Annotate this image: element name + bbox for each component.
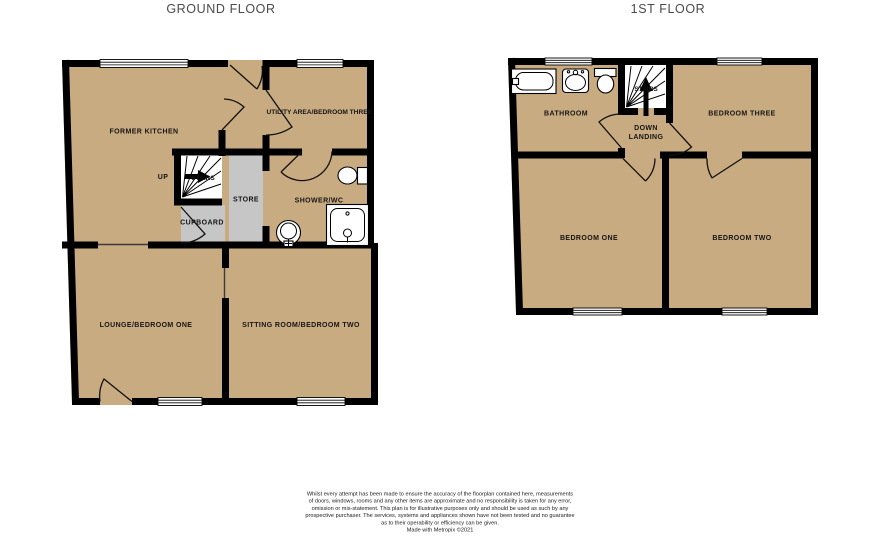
bath-icon xyxy=(512,69,557,94)
room-label-bedroom-one: BEDROOM ONE xyxy=(560,235,618,242)
window xyxy=(573,308,622,315)
room-label-lounge: LOUNGE/BEDROOM ONE xyxy=(100,322,193,329)
room-label-sitting-room: SITTING ROOM/BEDROOM TWO xyxy=(242,322,360,329)
room-label-former-kitchen: FORMER KITCHEN xyxy=(110,129,179,136)
window xyxy=(722,308,767,315)
toilet-icon xyxy=(338,167,368,184)
room-label-bedroom-three: BEDROOM THREE xyxy=(708,111,775,118)
disclaimer-credit: Made with Metropix ©2021 xyxy=(407,527,474,534)
window xyxy=(717,58,762,65)
disclaimer: Whilst every attempt has been made to en… xyxy=(305,492,574,534)
room-label-utility-area: UTILITY AREA/BEDROOM THREE xyxy=(267,109,373,116)
ground-floor-title: GROUND FLOOR xyxy=(166,2,275,16)
up-label: UP xyxy=(158,174,169,181)
window xyxy=(297,60,343,68)
disclaimer-line: prospective purchaser. The services, sys… xyxy=(305,513,574,519)
room-label-bathroom: BATHROOM xyxy=(544,111,588,118)
stairs-label: STAIRS xyxy=(191,175,215,182)
disclaimer-line: omission or mis-statement. This plan is … xyxy=(312,506,569,512)
shower-tray-icon xyxy=(327,205,369,246)
window xyxy=(158,398,202,406)
stairs-label: STAIRS xyxy=(634,86,658,93)
landing-label-down: DOWN xyxy=(634,125,658,132)
disclaimer-line: Whilst every attempt has been made to en… xyxy=(307,492,573,498)
window xyxy=(297,398,345,406)
landing-label-landing: LANDING xyxy=(629,134,664,141)
room-label-store: STORE xyxy=(233,197,259,204)
room-label-cupboard: CUPBOARD xyxy=(180,220,224,227)
disclaimer-line: as to their operability or efficiency ca… xyxy=(381,520,499,526)
first-floor-plan: BATHROOM BEDROOM THREE STAIRS DOWN LANDI… xyxy=(508,58,818,315)
room-label-shower-wc: SHOWER/WC xyxy=(295,198,344,205)
basin-icon xyxy=(563,69,589,93)
room-label-bedroom-two: BEDROOM TWO xyxy=(712,235,771,242)
ground-floor-plan: FORMER KITCHEN UTILITY AREA/BEDROOM THRE… xyxy=(62,60,378,406)
floorplan-page: FORMER KITCHEN UTILITY AREA/BEDROOM THRE… xyxy=(0,0,886,540)
disclaimer-line: of doors, windows, rooms and any other i… xyxy=(309,499,572,505)
window xyxy=(545,58,592,65)
window xyxy=(100,60,188,68)
first-floor-title: 1ST FLOOR xyxy=(631,2,706,16)
